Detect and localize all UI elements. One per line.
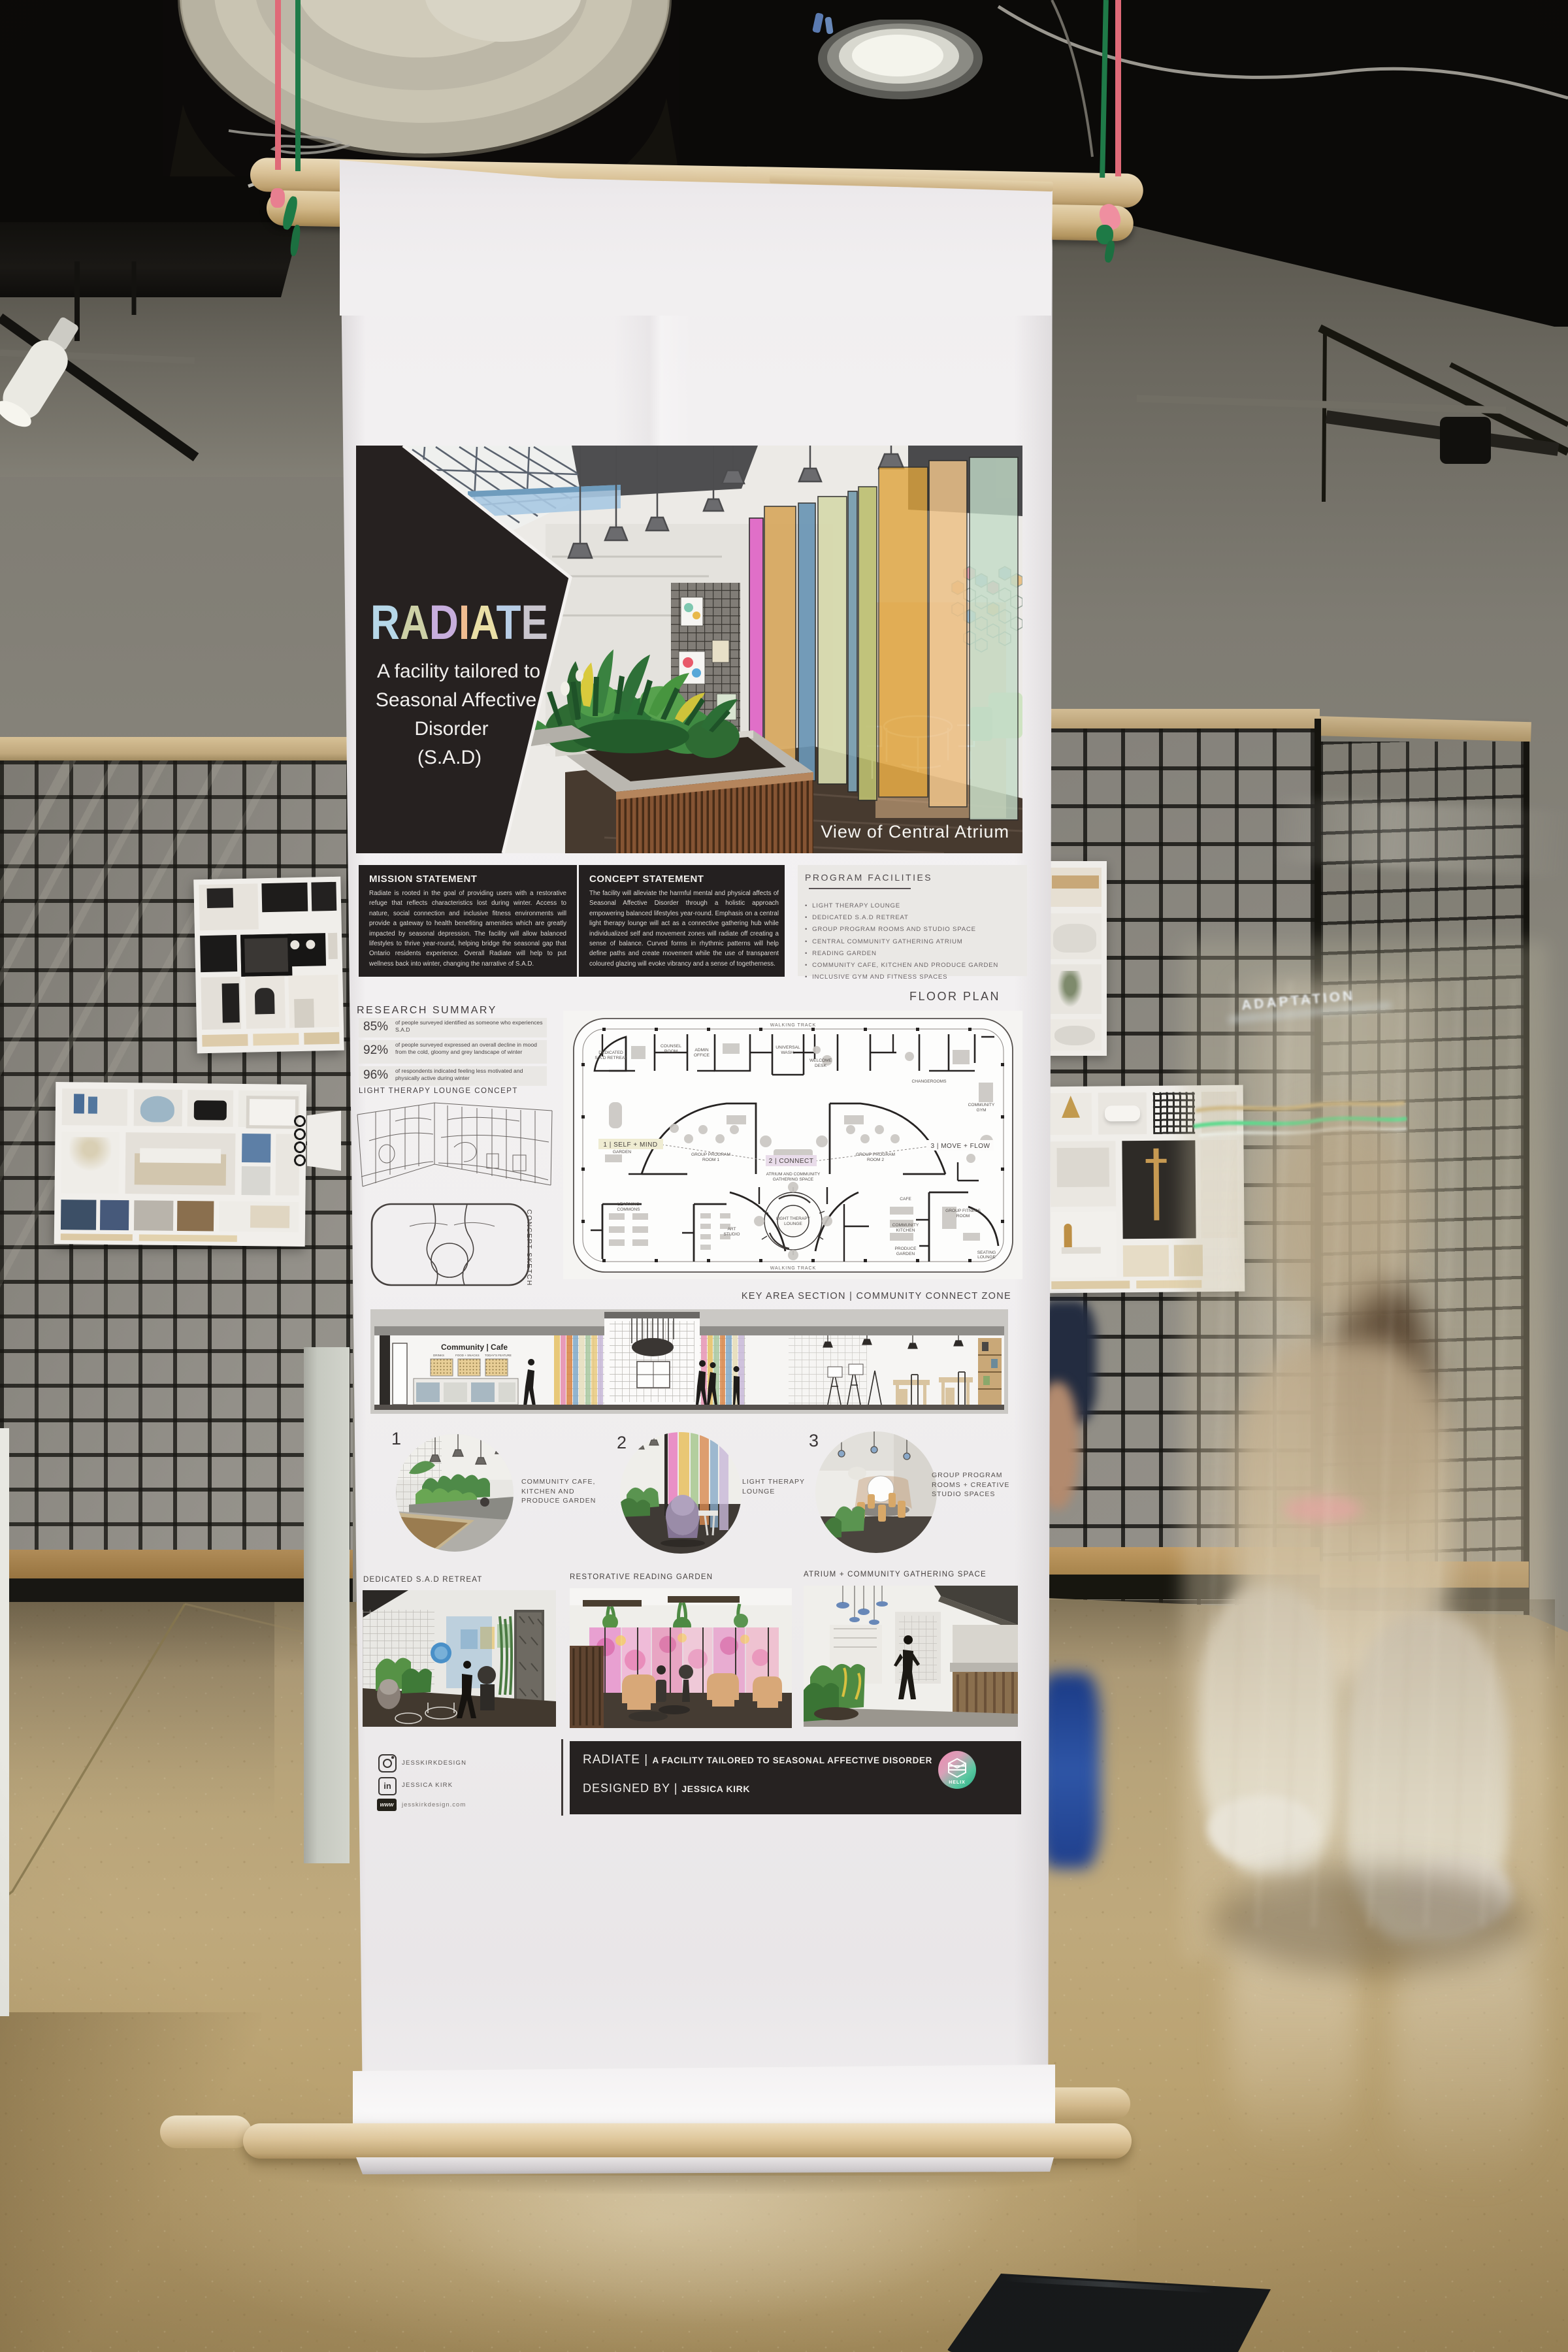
svg-text:(S.A.D): (S.A.D) xyxy=(417,747,482,768)
svg-text:OFFICE: OFFICE xyxy=(694,1053,710,1058)
svg-text:CAFE: CAFE xyxy=(900,1197,911,1201)
svg-text:DRINKS: DRINKS xyxy=(433,1354,444,1357)
svg-text:STUDIO: STUDIO xyxy=(724,1232,740,1237)
svg-text:LOUNGE: LOUNGE xyxy=(784,1222,802,1226)
svg-text:WASH.: WASH. xyxy=(781,1051,795,1055)
svg-text:1 | SELF + MIND: 1 | SELF + MIND xyxy=(603,1141,657,1149)
svg-text:COMMONS: COMMONS xyxy=(617,1207,640,1212)
svg-text:GROUP PROGRAM: GROUP PROGRAM xyxy=(691,1152,730,1157)
svg-text:ROOM: ROOM xyxy=(956,1214,970,1218)
svg-text:GARDEN: GARDEN xyxy=(613,1150,631,1154)
svg-text:KITCHEN: KITCHEN xyxy=(896,1228,915,1233)
svg-text:WALKING TRACK: WALKING TRACK xyxy=(770,1266,817,1271)
svg-text:ROOM: ROOM xyxy=(664,1049,678,1054)
svg-text:Disorder: Disorder xyxy=(414,718,488,740)
svg-text:PRODUCE: PRODUCE xyxy=(895,1247,917,1251)
svg-text:LOUNGE: LOUNGE xyxy=(977,1255,996,1260)
svg-text:WALKING TRACK: WALKING TRACK xyxy=(770,1023,817,1028)
svg-text:S.A.D RETREAT: S.A.D RETREAT xyxy=(595,1056,627,1060)
svg-text:View of Central Atrium: View of Central Atrium xyxy=(821,822,1009,841)
svg-text:2 | CONNECT: 2 | CONNECT xyxy=(769,1158,814,1165)
svg-text:GATHERING SPACE: GATHERING SPACE xyxy=(773,1177,814,1182)
svg-text:Community | Cafe: Community | Cafe xyxy=(441,1343,508,1352)
svg-text:WELCOME: WELCOME xyxy=(809,1058,832,1063)
svg-text:DESK: DESK xyxy=(815,1064,827,1068)
svg-text:ADMIN: ADMIN xyxy=(694,1048,708,1053)
svg-text:TODAY'S FEATURE: TODAY'S FEATURE xyxy=(485,1354,512,1357)
svg-text:RADIATE: RADIATE xyxy=(370,595,548,649)
svg-text:Seasonal Affective: Seasonal Affective xyxy=(376,689,536,711)
svg-text:ART: ART xyxy=(727,1227,736,1232)
svg-text:UNIVERSAL: UNIVERSAL xyxy=(776,1045,800,1050)
svg-text:COUNSEL: COUNSEL xyxy=(661,1044,681,1049)
svg-text:COMMUNITY: COMMUNITY xyxy=(968,1103,995,1107)
svg-text:COMMUNITY: COMMUNITY xyxy=(892,1223,919,1228)
svg-text:GARDEN: GARDEN xyxy=(896,1252,915,1256)
svg-text:GROUP FITNESS: GROUP FITNESS xyxy=(945,1209,981,1213)
svg-text:CHANGEROOMS: CHANGEROOMS xyxy=(911,1079,947,1084)
svg-text:LEARNING: LEARNING xyxy=(617,1202,640,1207)
svg-text:A facility tailored to: A facility tailored to xyxy=(377,661,540,682)
svg-text:FOOD + SNACKS: FOOD + SNACKS xyxy=(455,1354,480,1357)
svg-text:ATRIUM AND COMMUNITY: ATRIUM AND COMMUNITY xyxy=(766,1172,821,1177)
svg-text:ROOM 2: ROOM 2 xyxy=(867,1158,884,1162)
svg-text:SEATING: SEATING xyxy=(977,1250,996,1255)
svg-text:GYM: GYM xyxy=(976,1108,986,1113)
svg-text:HELIX: HELIX xyxy=(949,1780,966,1785)
svg-text:LIGHT THERAPY: LIGHT THERAPY xyxy=(776,1217,811,1221)
svg-text:ROOM 1: ROOM 1 xyxy=(702,1158,719,1162)
svg-text:3 | MOVE + FLOW: 3 | MOVE + FLOW xyxy=(931,1143,990,1150)
svg-text:DEDICATED: DEDICATED xyxy=(598,1051,623,1055)
